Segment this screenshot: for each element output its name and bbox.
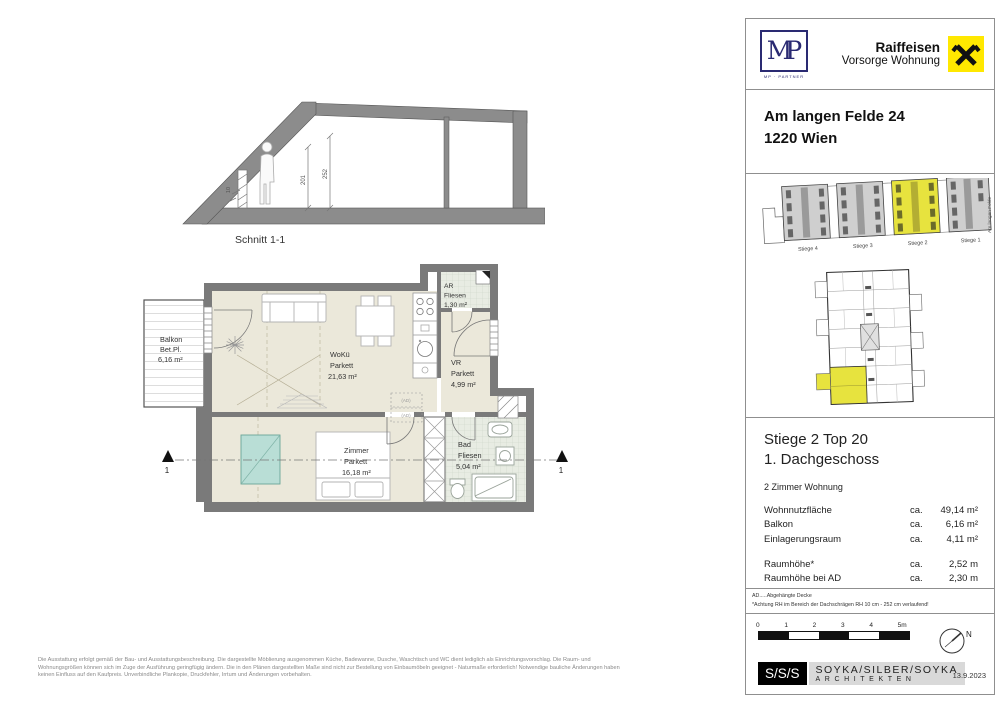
balcony-door-threshold [204, 307, 212, 353]
unit-info-box: Stiege 2 Top 20 1. Dachgeschoss 2 Zimmer… [745, 417, 995, 589]
stiege-3-label: Stiege 3 [853, 243, 873, 250]
svg-text:Balkon: Balkon [160, 335, 182, 344]
footnote-ad: AD.....Abgehängte Decke [752, 592, 988, 601]
kitchen-counter [413, 293, 437, 378]
site-box: Stiege 4 Stiege 3 Stiege 2 Stiege 1 Am l… [745, 173, 995, 418]
stiege-2-label: Stiege 2 [908, 240, 928, 247]
unit-title-line1: Stiege 2 Top 20 [764, 430, 978, 450]
block-stiege-1 [946, 178, 991, 232]
plan-date: 13.9.2023 [953, 671, 986, 680]
svg-text:AR: AR [444, 283, 454, 290]
svg-text:5,04 m²: 5,04 m² [456, 462, 481, 471]
dim-252: 252 [323, 168, 329, 179]
mp-logo-letters: MP [767, 36, 801, 65]
raiffeisen-gable-cross-icon [948, 36, 984, 72]
table-row: Raumhöhe bei AD ca. 2,30 m [764, 572, 978, 586]
block-stiege-2-highlighted [891, 178, 940, 234]
section-roof-slope [183, 102, 316, 224]
section-caption: Schnitt 1-1 [235, 234, 285, 246]
address-street: Am langen Felde 24 [764, 106, 994, 128]
svg-text:Parkett: Parkett [344, 457, 367, 466]
footnote-rh: *Achtung RH im Bereich der Dachschrägen … [752, 601, 988, 610]
disclaimer-line2: Wohnungsgrößen können sich im Zuge der A… [38, 665, 738, 673]
disclaimer-line1: Die Ausstattung erfolgt gemäß der Bau- u… [38, 657, 738, 665]
height-table: Raumhöhe* ca. 2,52 m Raumhöhe bei AD ca.… [764, 558, 978, 587]
svg-text:Bad: Bad [458, 440, 471, 449]
logo-box: MP MP · PARTNER Raiffeisen Vorsorge Wohn… [745, 18, 995, 90]
raiffeisen-logo: Raiffeisen Vorsorge Wohnung [842, 36, 984, 72]
svg-text:WoKü: WoKü [330, 350, 350, 359]
svg-text:(AD): (AD) [401, 398, 411, 403]
stiege-4-label: Stiege 4 [798, 246, 818, 253]
raiffeisen-name: Raiffeisen [842, 40, 940, 56]
area-table: Wohnnutzfläche ca. 49,14 m² Balkon ca. 6… [764, 504, 978, 547]
table-row: Wohnnutzfläche ca. 49,14 m² [764, 504, 978, 518]
stair-core [860, 324, 879, 351]
entry-door-threshold [490, 320, 498, 356]
footer-box: 0 1 2 3 4 5m N S/S/S S [745, 613, 995, 695]
block-stiege-4 [782, 184, 831, 240]
sofa [262, 294, 326, 322]
dim-201: 201 [301, 174, 307, 185]
mp-logo: MP MP · PARTNER [756, 30, 812, 79]
section-marker-right: 1 [559, 466, 564, 475]
svg-text:21,63 m²: 21,63 m² [328, 372, 357, 381]
section-interior-wall [444, 117, 449, 208]
svg-text:4,99 m²: 4,99 m² [451, 380, 476, 389]
architect-logo: S/S/S SOYKA/SILBER/SOYKA ARCHITEKTEN [758, 662, 965, 685]
disclaimer-text: Die Ausstattung erfolgt gemäß der Bau- u… [38, 657, 738, 680]
site-floorplan-diagram [795, 266, 945, 414]
table-row: Balkon ca. 6,16 m² [764, 518, 978, 532]
north-label: N [966, 630, 972, 639]
site-strip-end [763, 208, 785, 244]
address-box: Am langen Felde 24 1220 Wien [745, 89, 995, 174]
ar-corner-shaft [476, 270, 490, 284]
site-strip-diagram: Stiege 4 Stiege 3 Stiege 2 Stiege 1 Am l… [746, 178, 994, 264]
shaft-niche [498, 396, 518, 418]
section-drawing: 201 252 10 Schnitt 1-1 [180, 90, 545, 250]
address-city: 1220 Wien [764, 128, 994, 150]
table-row: Einlagerungsraum ca. 4,11 m² [764, 533, 978, 547]
svg-text:Parkett: Parkett [451, 369, 474, 378]
shaft-column [424, 417, 445, 502]
plan-sheet: 201 252 10 Schnitt 1-1 [0, 0, 1000, 707]
svg-text:Zimmer: Zimmer [344, 446, 369, 455]
svg-text:16,18 m²: 16,18 m² [342, 468, 371, 477]
dim-10: 10 [226, 187, 232, 193]
bed [316, 432, 390, 500]
label-zimmer: Zimmer Parkett 16,18 m² [342, 446, 371, 477]
section-right-wall [513, 111, 527, 208]
raiffeisen-subtitle: Vorsorge Wohnung [842, 55, 940, 68]
footnotes-box: AD.....Abgehängte Decke *Achtung RH im B… [745, 588, 995, 614]
firm-subtitle: ARCHITEKTEN [816, 676, 959, 683]
north-arrow-icon: N [936, 624, 980, 658]
svg-text:VR: VR [451, 358, 461, 367]
table-row: Raumhöhe* ca. 2,52 m [764, 558, 978, 572]
floorplan-drawing: (AD) (AD) 1 1 Balkon Bet.Pl. 6,16 m² [140, 250, 585, 540]
section-marker-left: 1 [165, 466, 170, 475]
svg-text:(AD): (AD) [401, 413, 411, 418]
title-block-panel: MP MP · PARTNER Raiffeisen Vorsorge Wohn… [745, 18, 995, 695]
mp-logo-caption: MP · PARTNER [756, 74, 812, 79]
sss-logo: S/S/S [758, 662, 807, 685]
section-floor-slab [202, 208, 545, 224]
label-balkon: Balkon Bet.Pl. 6,16 m² [158, 335, 183, 364]
unit-title-line2: 1. Dachgeschoss [764, 450, 978, 470]
firm-name: SOYKA/SILBER/SOYKA [816, 664, 959, 676]
svg-text:6,16 m²: 6,16 m² [158, 355, 183, 364]
section-knee-wall [238, 170, 247, 208]
svg-text:Parkett: Parkett [330, 361, 353, 370]
stiege-1-label: Stiege 1 [961, 237, 981, 244]
block-stiege-3 [837, 181, 886, 237]
section-ceiling-slab [307, 103, 527, 123]
disclaimer-line3: keinen Einfluss auf den Kaufpreis. Unver… [38, 672, 738, 680]
street-name-vertical: Am langen Felde [987, 196, 993, 233]
scale-bar: 0 1 2 3 4 5m [758, 622, 928, 640]
unit-subtitle: 2 Zimmer Wohnung [764, 482, 978, 492]
svg-text:Bet.Pl.: Bet.Pl. [160, 345, 182, 354]
highlighted-unit [816, 366, 867, 405]
svg-text:Fliesen: Fliesen [458, 451, 482, 460]
svg-text:1,30 m²: 1,30 m² [444, 302, 468, 309]
svg-text:Fliesen: Fliesen [444, 293, 466, 300]
storage-box [241, 435, 280, 484]
